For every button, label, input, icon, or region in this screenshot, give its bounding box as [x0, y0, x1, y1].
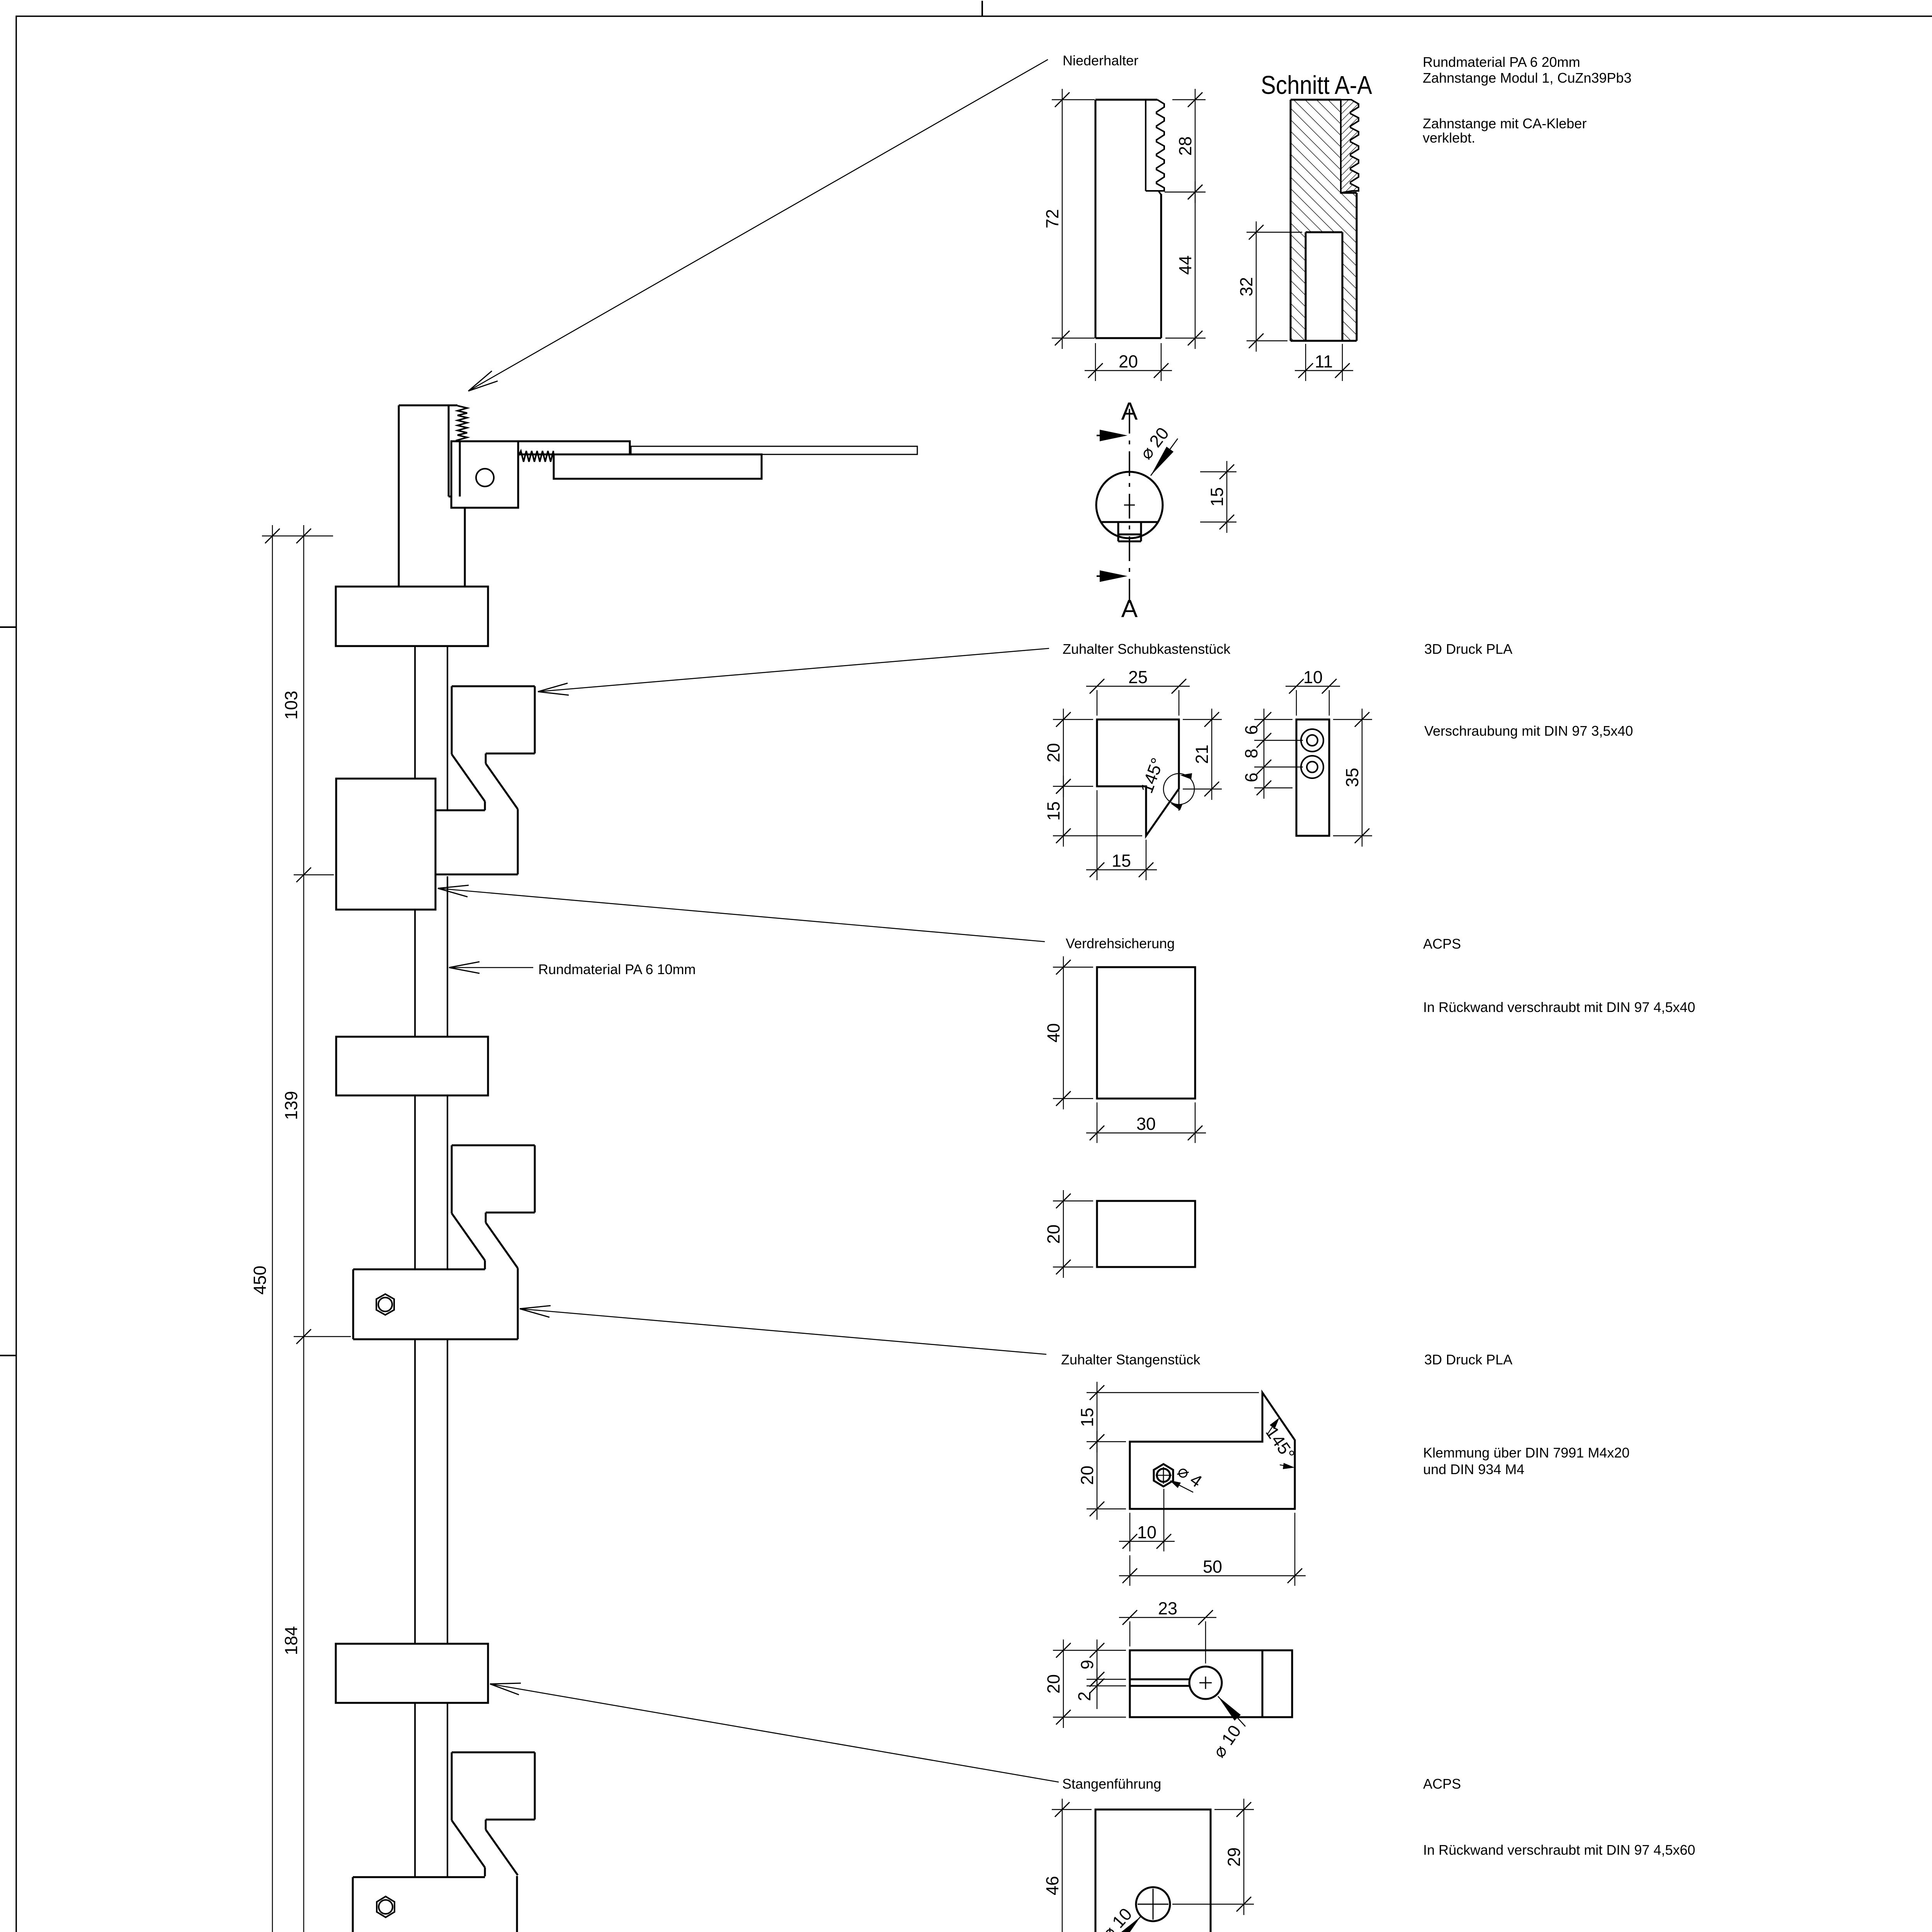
svg-text:139: 139 [281, 1091, 301, 1120]
svg-text:A: A [1121, 595, 1138, 622]
svg-text:3D Druck PLA: 3D Druck PLA [1424, 641, 1512, 657]
svg-text:20: 20 [1044, 1225, 1063, 1244]
svg-text:Verdrehsicherung: Verdrehsicherung [1066, 935, 1175, 951]
svg-text:450: 450 [250, 1265, 270, 1294]
svg-text:Zuhalter Stangenstück: Zuhalter Stangenstück [1061, 1352, 1201, 1367]
svg-text:35: 35 [1342, 768, 1362, 787]
svg-text:15: 15 [1077, 1408, 1097, 1427]
svg-text:Verschraubung mit DIN 97 3,5x4: Verschraubung mit DIN 97 3,5x40 [1424, 723, 1633, 739]
svg-text:103: 103 [281, 690, 301, 719]
svg-text:9: 9 [1077, 1660, 1097, 1669]
svg-text:30: 30 [1136, 1114, 1156, 1134]
svg-text:verklebt.: verklebt. [1423, 130, 1475, 146]
svg-text:15: 15 [1112, 851, 1131, 871]
svg-text:ACPS: ACPS [1423, 936, 1461, 952]
svg-text:21: 21 [1192, 745, 1212, 764]
svg-text:15: 15 [1207, 487, 1227, 507]
svg-text:Stangenführung: Stangenführung [1062, 1776, 1161, 1792]
svg-text:15: 15 [1044, 801, 1063, 821]
svg-text:A: A [1121, 397, 1138, 425]
svg-text:6: 6 [1242, 772, 1261, 782]
svg-text:10: 10 [1137, 1522, 1156, 1542]
svg-text:10: 10 [1303, 667, 1323, 687]
svg-text:Schnitt A-A: Schnitt A-A [1261, 71, 1372, 100]
svg-text:40: 40 [1044, 1023, 1063, 1043]
svg-text:25: 25 [1128, 667, 1148, 687]
svg-text:Rundmaterial PA 6 10mm: Rundmaterial PA 6 10mm [538, 961, 696, 977]
svg-text:20: 20 [1044, 743, 1063, 762]
svg-text:In Rückwand verschraubt mit DI: In Rückwand verschraubt mit DIN 97 4,5x4… [1423, 999, 1695, 1015]
svg-text:3D Druck PLA: 3D Druck PLA [1424, 1352, 1512, 1367]
svg-text:Zahnstange mit CA-Kleber: Zahnstange mit CA-Kleber [1423, 116, 1587, 131]
svg-text:11: 11 [1315, 352, 1333, 371]
svg-text:Niederhalter: Niederhalter [1063, 53, 1138, 68]
svg-text:23: 23 [1158, 1599, 1177, 1618]
svg-text:6: 6 [1242, 725, 1261, 735]
svg-text:Rundmaterial PA 6 20mm: Rundmaterial PA 6 20mm [1423, 54, 1580, 70]
svg-text:ACPS: ACPS [1423, 1776, 1461, 1792]
svg-text:50: 50 [1203, 1557, 1222, 1577]
svg-text:Zuhalter Schubkastenstück: Zuhalter Schubkastenstück [1063, 641, 1231, 657]
svg-text:20: 20 [1077, 1466, 1097, 1485]
svg-text:184: 184 [281, 1626, 301, 1655]
svg-text:Zahnstange Modul 1, CuZn39Pb3: Zahnstange Modul 1, CuZn39Pb3 [1423, 70, 1631, 86]
svg-text:2: 2 [1075, 1691, 1094, 1701]
svg-text:20: 20 [1119, 352, 1138, 371]
svg-text:und DIN 934 M4: und DIN 934 M4 [1423, 1461, 1524, 1477]
svg-text:32: 32 [1236, 277, 1256, 296]
svg-text:In Rückwand verschraubt mit DI: In Rückwand verschraubt mit DIN 97 4,5x6… [1423, 1842, 1695, 1858]
svg-text:72: 72 [1043, 209, 1062, 228]
svg-text:29: 29 [1224, 1847, 1244, 1867]
svg-text:20: 20 [1044, 1674, 1063, 1694]
svg-text:8: 8 [1242, 748, 1261, 758]
svg-text:Klemmung über DIN 7991 M4x20: Klemmung über DIN 7991 M4x20 [1423, 1445, 1629, 1461]
svg-text:28: 28 [1175, 136, 1195, 156]
svg-text:46: 46 [1043, 1876, 1062, 1895]
svg-text:44: 44 [1175, 255, 1195, 275]
